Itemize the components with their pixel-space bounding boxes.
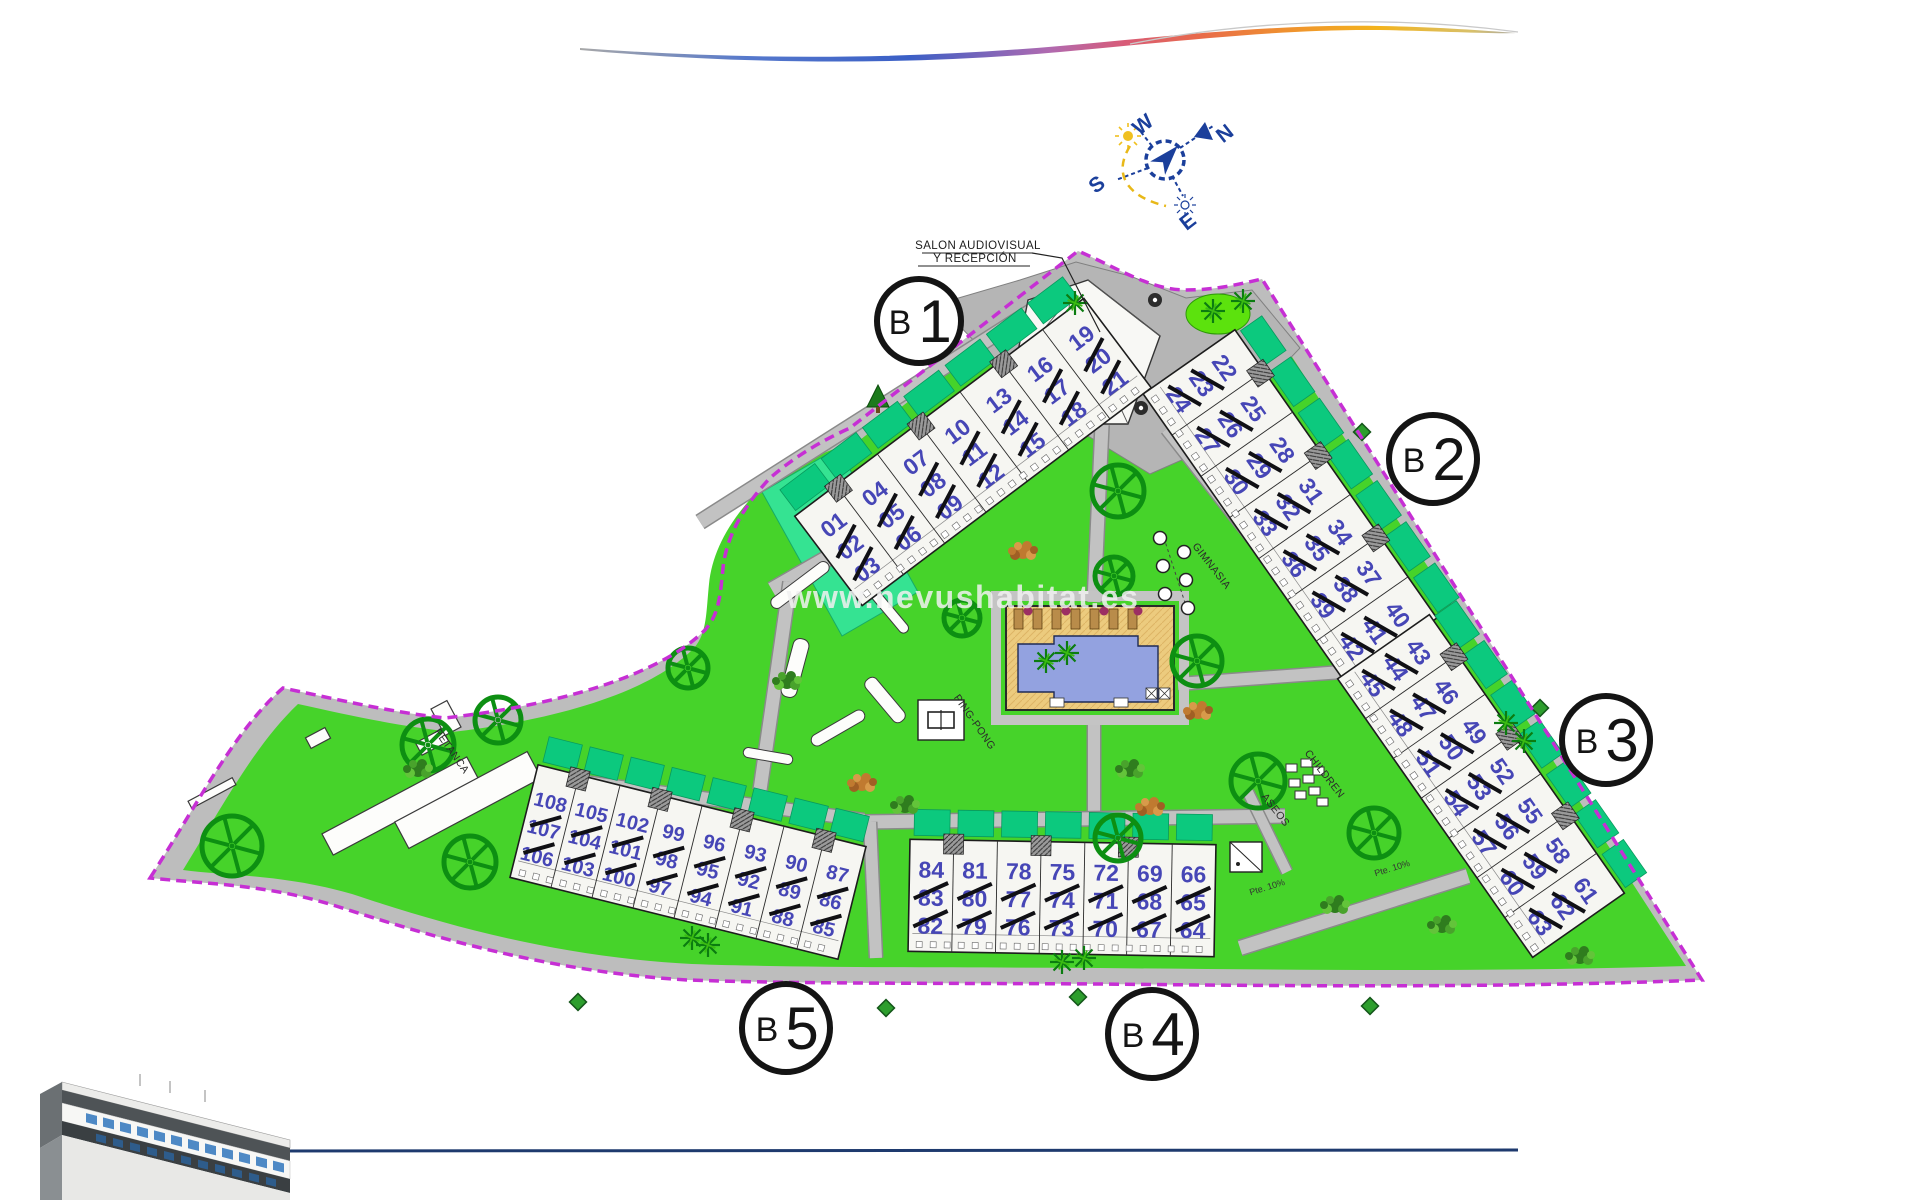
- palm-tree-icon: [1512, 729, 1536, 753]
- palm-tree-icon: [1494, 711, 1518, 735]
- access-marker-icon: [878, 1000, 895, 1017]
- stairwell: [648, 787, 672, 811]
- garden-strip: [1045, 812, 1081, 839]
- block-label-letter: B: [889, 304, 912, 342]
- compass-s: S: [1084, 172, 1109, 199]
- block-label-b5: B5: [742, 984, 830, 1072]
- bottom-decoration: [40, 1074, 1518, 1200]
- site-plan-page: W N S E: [0, 0, 1920, 1200]
- access-marker-icon: [1070, 989, 1087, 1006]
- block-label-b2: B2: [1389, 415, 1477, 503]
- palm-tree-icon: [1063, 291, 1087, 315]
- block-label-number: 3: [1605, 707, 1638, 774]
- unit-number: 75: [1049, 859, 1075, 885]
- unit-number: 84: [918, 856, 944, 882]
- access-marker-icon: [570, 994, 587, 1011]
- unit-number: 69: [1137, 860, 1163, 886]
- block-label-b1: B1: [877, 279, 961, 363]
- access-marker-icon: [1362, 998, 1379, 1015]
- site-plan-canvas: W N S E: [0, 0, 1920, 1200]
- aseos-building: [1230, 842, 1262, 872]
- unit-number: 66: [1181, 861, 1207, 887]
- block-label-number: 1: [918, 288, 951, 355]
- palm-tree-icon: [1055, 641, 1079, 665]
- block-label-letter: B: [1122, 1017, 1145, 1055]
- unit-number: 72: [1093, 860, 1119, 886]
- garden-strip: [958, 810, 994, 837]
- unit-number: 78: [1006, 858, 1032, 884]
- watermark: www.nevushabitat.es: [786, 579, 1140, 615]
- block-label-letter: B: [1576, 723, 1599, 761]
- palm-tree-icon: [1034, 649, 1058, 673]
- reception-label-line1: SALON AUDIOVISUAL: [915, 240, 1041, 252]
- palm-tree-icon: [696, 933, 720, 957]
- palm-tree-icon: [1050, 950, 1074, 974]
- block-label-b3: B3: [1562, 696, 1650, 784]
- compass-n: N: [1212, 120, 1238, 147]
- building-render-illustration: [40, 1074, 290, 1200]
- stairwell: [812, 828, 836, 852]
- garden-strip: [1001, 811, 1037, 838]
- stairwell: [566, 767, 590, 791]
- compass-rose: W N S E: [1084, 110, 1238, 236]
- garden-strip: [1176, 814, 1212, 841]
- palm-tree-icon: [1231, 289, 1255, 313]
- stairwell: [1031, 835, 1051, 855]
- block-label-number: 4: [1151, 1001, 1184, 1068]
- stairwell: [730, 808, 754, 832]
- unit-number: 81: [962, 857, 988, 883]
- bottom-line: [268, 1150, 1518, 1151]
- reception-label-line2: Y RECEPCIÓN: [933, 252, 1016, 265]
- block-label-letter: B: [756, 1011, 779, 1049]
- top-swoosh-decoration: [580, 22, 1518, 62]
- block-label-b4: B4: [1108, 990, 1196, 1078]
- block-label-number: 2: [1432, 426, 1465, 493]
- stairwell: [943, 834, 963, 854]
- block-label-number: 5: [785, 995, 818, 1062]
- garden-strip: [914, 809, 950, 836]
- block-label-letter: B: [1403, 442, 1426, 480]
- compass-e: E: [1175, 209, 1200, 236]
- palm-tree-icon: [1072, 946, 1096, 970]
- palm-tree-icon: [1201, 299, 1225, 323]
